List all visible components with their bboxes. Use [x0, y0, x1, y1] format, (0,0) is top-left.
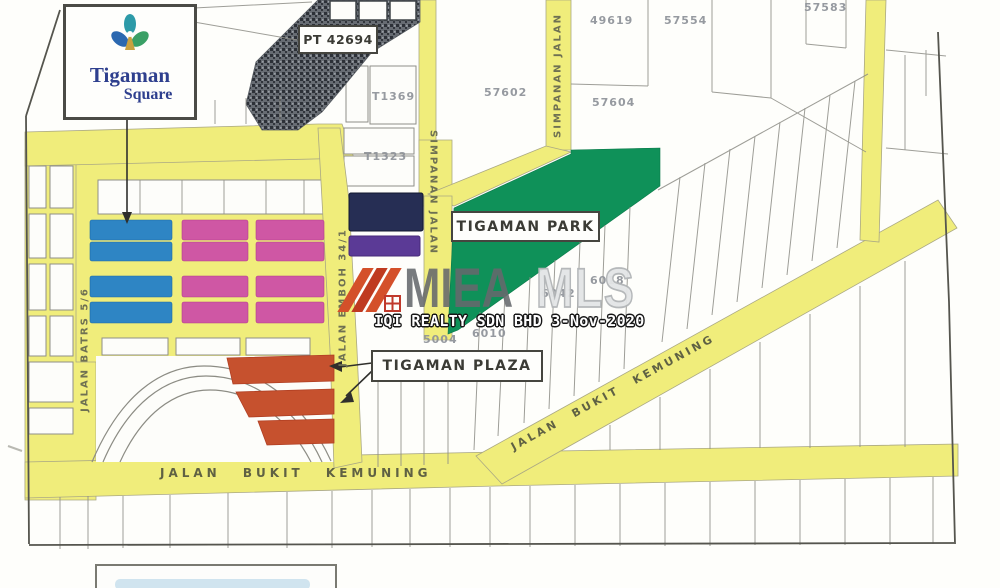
plaza-shop-block	[227, 355, 334, 384]
parcel-57602: 57602	[484, 86, 527, 99]
block-navy	[349, 193, 423, 231]
shop-block-blue	[90, 220, 172, 240]
road-label-simpanan-center: SIMPANAN JALAN	[428, 123, 439, 263]
shop-block-blue	[90, 276, 172, 297]
shop-block-pink	[256, 220, 324, 240]
shop-block-pink	[256, 242, 324, 261]
watermark-brand: MIEA	[404, 260, 513, 316]
shop-block-pink	[256, 276, 324, 297]
watermark-caption: IQI REALTY SDN BHD 3-Nov-2020	[374, 312, 645, 330]
parcel-t1369: T1369	[372, 90, 415, 103]
watermark-suffix: MLS	[536, 260, 635, 316]
shop-block-blue	[90, 242, 172, 261]
tigaman-plaza-label: TIGAMAN PLAZA	[371, 350, 543, 382]
shop-block-blue	[90, 302, 172, 323]
scan-artifact	[8, 446, 22, 451]
watermark-grid-icon	[384, 295, 401, 312]
bottom-box-content	[115, 579, 310, 588]
road-right	[860, 0, 886, 242]
parcel-t1323: T1323	[364, 150, 407, 163]
shop-block-pink	[256, 302, 324, 323]
tigaman-logo-icon	[107, 12, 153, 58]
location-map: Tigaman Square PT 42694 TIGAMAN PARK TIG…	[0, 0, 1000, 588]
shop-block-pink	[182, 276, 248, 297]
logo-subtitle: Square	[66, 86, 194, 104]
shop-block-pink	[182, 302, 248, 323]
logo-title: Tigaman	[66, 63, 194, 88]
road-label-simpanan-right: SIMPANAN JALAN	[553, 6, 564, 146]
shop-block-pink	[182, 220, 248, 240]
bottom-cutoff-box	[95, 564, 337, 588]
parcel-49619: 49619	[590, 14, 633, 27]
tigaman-park-label: TIGAMAN PARK	[451, 211, 600, 242]
block-purple	[349, 236, 420, 256]
road-label-batrs: JALAN BATRS 5/6	[80, 270, 91, 430]
road-label-bukit-kemuning-bottom: JALAN BUKIT KEMUNING	[160, 466, 432, 480]
parcel-5004: 5004	[423, 333, 458, 346]
pt-lot-label: PT 42694	[298, 25, 378, 54]
parcel-57554: 57554	[664, 14, 707, 27]
logo-box: Tigaman Square	[63, 4, 197, 120]
hatched-area-parcels	[330, 1, 416, 20]
plaza-shop-block	[258, 419, 334, 445]
plaza-shop-block	[236, 389, 334, 417]
parcel-57583: 57583	[804, 1, 847, 14]
parcel-57604: 57604	[592, 96, 635, 109]
shop-block-pink	[182, 242, 248, 261]
